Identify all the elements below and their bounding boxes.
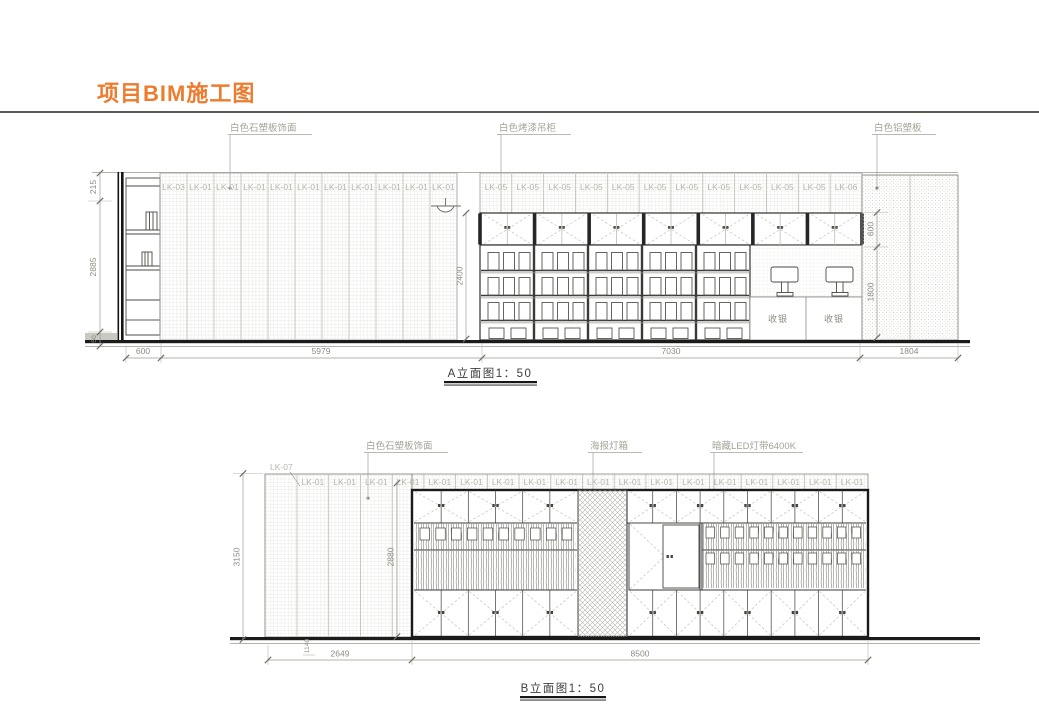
door-handle (547, 611, 549, 614)
panel-label: LK-01 (841, 477, 864, 487)
shelf-item (650, 253, 661, 271)
shelf-item (727, 328, 742, 339)
shelf-item (504, 303, 515, 321)
shelf-item (612, 278, 623, 296)
dim-label: 2880 (386, 547, 396, 566)
panel-label: LK-01 (351, 182, 374, 192)
shelf-item (519, 278, 530, 296)
panel-label: LK-01 (365, 477, 388, 487)
panel-label: LK-01 (378, 182, 401, 192)
door-handle (504, 226, 506, 229)
hanger-item (499, 528, 509, 540)
cashier-label: 收银 (768, 313, 788, 324)
panel-label: LK-05 (485, 182, 508, 192)
shelf-item (735, 278, 746, 296)
shelf-item (666, 303, 677, 321)
hanger-item (750, 527, 759, 538)
title-divider (0, 111, 1039, 113)
panel-label: LK-05 (580, 182, 603, 192)
hanger-item (735, 527, 744, 538)
shelf-item (573, 303, 584, 321)
panel-label: LK-01 (777, 477, 800, 487)
shelf-item (704, 253, 715, 271)
cabinet-post (696, 214, 700, 245)
hanger-item (531, 528, 541, 540)
door-handle (496, 611, 498, 614)
hanger-item (823, 527, 832, 538)
panel-label: LK-05 (612, 182, 635, 192)
door-handle (701, 504, 703, 507)
dim-left-a: 215 2885 50 (88, 172, 112, 346)
hanger-item (483, 528, 493, 540)
shelf-item (596, 278, 607, 296)
caption-b: B立面图1：50 (520, 681, 606, 701)
door-handle (438, 504, 440, 507)
door-handle (613, 226, 615, 229)
dim-left-b: 3150 (232, 474, 264, 641)
hanger-item (420, 528, 430, 540)
door-handle (843, 504, 845, 507)
dim-label: 50 (91, 335, 98, 343)
door-handle (701, 611, 703, 614)
hanger-item (779, 553, 788, 564)
bay-separator (695, 245, 697, 340)
shelf-item (519, 253, 530, 271)
hangers (706, 553, 861, 564)
door-handle (781, 226, 783, 229)
panel-label: LK-01 (324, 182, 347, 192)
hanger-item (808, 527, 817, 538)
shelf-item (681, 253, 692, 271)
shelf-item (597, 328, 612, 339)
door-handle (796, 611, 798, 614)
shelf-item (504, 253, 515, 271)
hanger-item (721, 553, 730, 564)
door-handle (617, 226, 619, 229)
panel-label: LK-06 (835, 182, 858, 192)
hanger-item (735, 553, 744, 564)
door-handle (832, 226, 834, 229)
dim-bottom-a: 600 5979 7030 1804 (126, 343, 958, 363)
panel-label: LK-01 (243, 182, 266, 192)
cabinet-post (587, 214, 591, 245)
shelf-item (619, 328, 634, 339)
door-handle (547, 504, 549, 507)
door-handle (492, 611, 494, 614)
panel-label: LK-01 (555, 477, 578, 487)
shelf-item (651, 328, 666, 339)
panel-label: LK-01 (746, 477, 769, 487)
panel-label: LK-01 (302, 477, 325, 487)
panel-label: LK-01 (189, 182, 212, 192)
bay-separator (587, 245, 589, 340)
cabinet-post (642, 214, 646, 245)
annotation-label: 暗藏LED灯带6400K (712, 440, 797, 452)
shelf-item (704, 278, 715, 296)
annotation-label: 白色石塑板饰面 (230, 122, 297, 134)
cashier-zone: 收银 收银 (750, 245, 862, 340)
clothes-rack (415, 551, 576, 590)
panel-label: LK-01 (682, 477, 705, 487)
panel-label: LK-01 (714, 477, 737, 487)
hanger-item (764, 527, 773, 538)
shelf-item (488, 303, 499, 321)
annotation-label: 白色烤漆吊柜 (499, 122, 557, 134)
door-handle (438, 611, 440, 614)
door-handle (839, 611, 841, 614)
drawing-canvas: 白色石塑板饰面 白色烤漆吊柜 白色铝塑板 (0, 0, 1039, 720)
hanger-item (515, 528, 525, 540)
door-handle (843, 611, 845, 614)
hanger-item (852, 527, 861, 538)
shelf-item (612, 303, 623, 321)
cabinet-post (478, 214, 482, 245)
shelf-item (705, 328, 720, 339)
hanger-item (779, 527, 788, 538)
shelf-item (720, 303, 731, 321)
dim-label: 7030 (662, 346, 681, 356)
door-handle (792, 504, 794, 507)
bay-separator (533, 245, 535, 340)
shelf-item (542, 253, 553, 271)
shelf-item (650, 303, 661, 321)
shelf-item (542, 303, 553, 321)
panel-label: LK-01 (809, 477, 832, 487)
dim-label: 5979 (312, 346, 331, 356)
panel-label: LK-01 (432, 182, 455, 192)
dim-label: 215 (88, 180, 98, 194)
panel-label: LK-01 (428, 477, 451, 487)
panel-label: LK-05 (548, 182, 571, 192)
dim-bottom-b: 2649 8500 (268, 641, 868, 665)
shelf-item (627, 303, 638, 321)
caption-text: A立面图1：50 (448, 366, 533, 380)
dim-label: 600 (136, 346, 150, 356)
shelf-item (519, 303, 530, 321)
door-handle (559, 226, 561, 229)
door-handle (748, 504, 750, 507)
hanger-item (852, 553, 861, 564)
door-handle (726, 226, 728, 229)
elevation-b: 白色石塑板饰面 海报灯箱 暗藏LED灯带6400K LK-07 (230, 440, 980, 701)
shelf-item (627, 253, 638, 271)
hanger-item (794, 553, 803, 564)
annotation-label: 海报灯箱 (590, 440, 628, 452)
shelf-item (558, 303, 569, 321)
dim-label: 1800 (866, 282, 876, 301)
shelf-item (735, 303, 746, 321)
shelf-item (612, 253, 623, 271)
panel-label: LK-05 (739, 182, 762, 192)
door-handle (748, 611, 750, 614)
shelf-item (543, 328, 558, 339)
shelf-item (573, 278, 584, 296)
panel-label: LK-03 (162, 182, 185, 192)
door-handle (442, 504, 444, 507)
caption-a: A立面图1：50 (444, 366, 537, 386)
shelf-item (558, 278, 569, 296)
door-handle (508, 226, 510, 229)
caption-text: B立面图1：50 (521, 681, 606, 695)
door-handle (839, 504, 841, 507)
shelf-item (704, 303, 715, 321)
shelf-item (596, 303, 607, 321)
hanger-item (808, 553, 817, 564)
panel-label: LK-01 (492, 477, 515, 487)
cabinet-post (806, 214, 810, 245)
shelf-item (666, 278, 677, 296)
panel-label: LK-01 (587, 477, 610, 487)
bay-separator (641, 245, 643, 340)
floor-line-b (230, 637, 980, 640)
wall-panels-a (160, 173, 457, 340)
hangers (706, 527, 861, 538)
door-handle (650, 504, 652, 507)
shelf-item (720, 253, 731, 271)
hanger-item (467, 528, 477, 540)
dim-label: 1140 (304, 638, 311, 653)
dim-label: 600 (866, 222, 876, 236)
panel-label: LK-01 (650, 477, 673, 487)
shelf-item (573, 253, 584, 271)
door-handle (650, 611, 652, 614)
shelf-item (735, 253, 746, 271)
cabinet-post (533, 214, 537, 245)
door-handle (835, 226, 837, 229)
door-handle (796, 504, 798, 507)
annotation-label: 白色铝塑板 (874, 122, 922, 134)
shelf-item (488, 278, 499, 296)
dim-label: 2649 (331, 649, 350, 659)
door-handle (551, 611, 553, 614)
shelf-item (542, 278, 553, 296)
shelf-item (504, 278, 515, 296)
dim-label: 2400 (455, 266, 465, 285)
corner-panel-label: LK-07 (270, 462, 293, 472)
hanger-item (721, 527, 730, 538)
door-handle (744, 611, 746, 614)
door-handle (654, 611, 656, 614)
cabinet-post (751, 214, 755, 245)
hanger-item (823, 553, 832, 564)
panel-label-row: LK-03LK-01LK-01LK-01LK-01LK-01LK-01LK-01… (162, 182, 455, 192)
hanger-item (750, 553, 759, 564)
shelf-item (489, 328, 504, 339)
panel-label: LK-01 (405, 182, 428, 192)
hanger-item (706, 527, 715, 538)
door-handle (496, 504, 498, 507)
shelf-item (488, 253, 499, 271)
dim-small-b: 1140 (303, 638, 315, 655)
hanger-item (764, 553, 773, 564)
hanger-item (837, 527, 846, 538)
dim-label: 2885 (88, 257, 98, 276)
panel-label: LK-05 (803, 182, 826, 192)
shelf-item (565, 328, 580, 339)
side-cabinet-section (126, 178, 160, 335)
door-handle (723, 226, 725, 229)
door-handle (697, 611, 699, 614)
hanger-item (794, 527, 803, 538)
shelf-item (681, 278, 692, 296)
panel-label: LK-01 (460, 477, 483, 487)
door-handle (492, 504, 494, 507)
shelf-item (720, 278, 731, 296)
annotation-label: 白色石塑板饰面 (366, 440, 433, 452)
panel-label: LK-01 (619, 477, 642, 487)
shelf-item (596, 253, 607, 271)
elevation-a: 白色石塑板饰面 白色烤漆吊柜 白色铝塑板 (85, 122, 970, 386)
hanger-item (546, 528, 556, 540)
shelf-item (511, 328, 526, 339)
shelf-item (627, 278, 638, 296)
panel-label: LK-01 (297, 182, 320, 192)
door-handle (562, 226, 564, 229)
door-handle (672, 226, 674, 229)
hanger-item (706, 553, 715, 564)
fitting-room-door (629, 523, 700, 590)
shelf-item (666, 253, 677, 271)
panel-label: LK-01 (216, 182, 239, 192)
dim-label: 1804 (900, 346, 919, 356)
dim-label: 8500 (631, 649, 650, 659)
panel-label: LK-01 (270, 182, 293, 192)
shelf-item (673, 328, 688, 339)
hanger-item (436, 528, 446, 540)
shelf-item (650, 278, 661, 296)
cashier-label: 收银 (824, 313, 844, 324)
panel-label: LK-01 (524, 477, 547, 487)
panel-label: LK-01 (333, 477, 356, 487)
door-handle (442, 611, 444, 614)
door-handle (551, 504, 553, 507)
panel-label: LK-05 (771, 182, 794, 192)
slide: 项目BIM施工图 白色石塑板饰面 (0, 0, 1039, 720)
door-handle (654, 504, 656, 507)
dim-label: 3150 (232, 547, 242, 566)
panel-label: LK-01 (397, 477, 420, 487)
shelf-item (681, 303, 692, 321)
hanging-cabinet-doors (478, 214, 864, 246)
panel-label: LK-05 (516, 182, 539, 192)
hanger-item (452, 528, 462, 540)
poster-lightbox (578, 490, 627, 637)
wall-section-cut (118, 172, 124, 342)
door-handle (668, 226, 670, 229)
door-handle (697, 504, 699, 507)
floor-line-a (85, 340, 970, 343)
door-handle (744, 504, 746, 507)
door-handle (777, 226, 779, 229)
panel-label: LK-05 (644, 182, 667, 192)
hanger-item (562, 528, 572, 540)
hanger-item (837, 553, 846, 564)
panel-label: LK-05 (707, 182, 730, 192)
page-title: 项目BIM施工图 (97, 76, 255, 108)
shelf-item (558, 253, 569, 271)
panel-label: LK-05 (676, 182, 699, 192)
door-handle (792, 611, 794, 614)
